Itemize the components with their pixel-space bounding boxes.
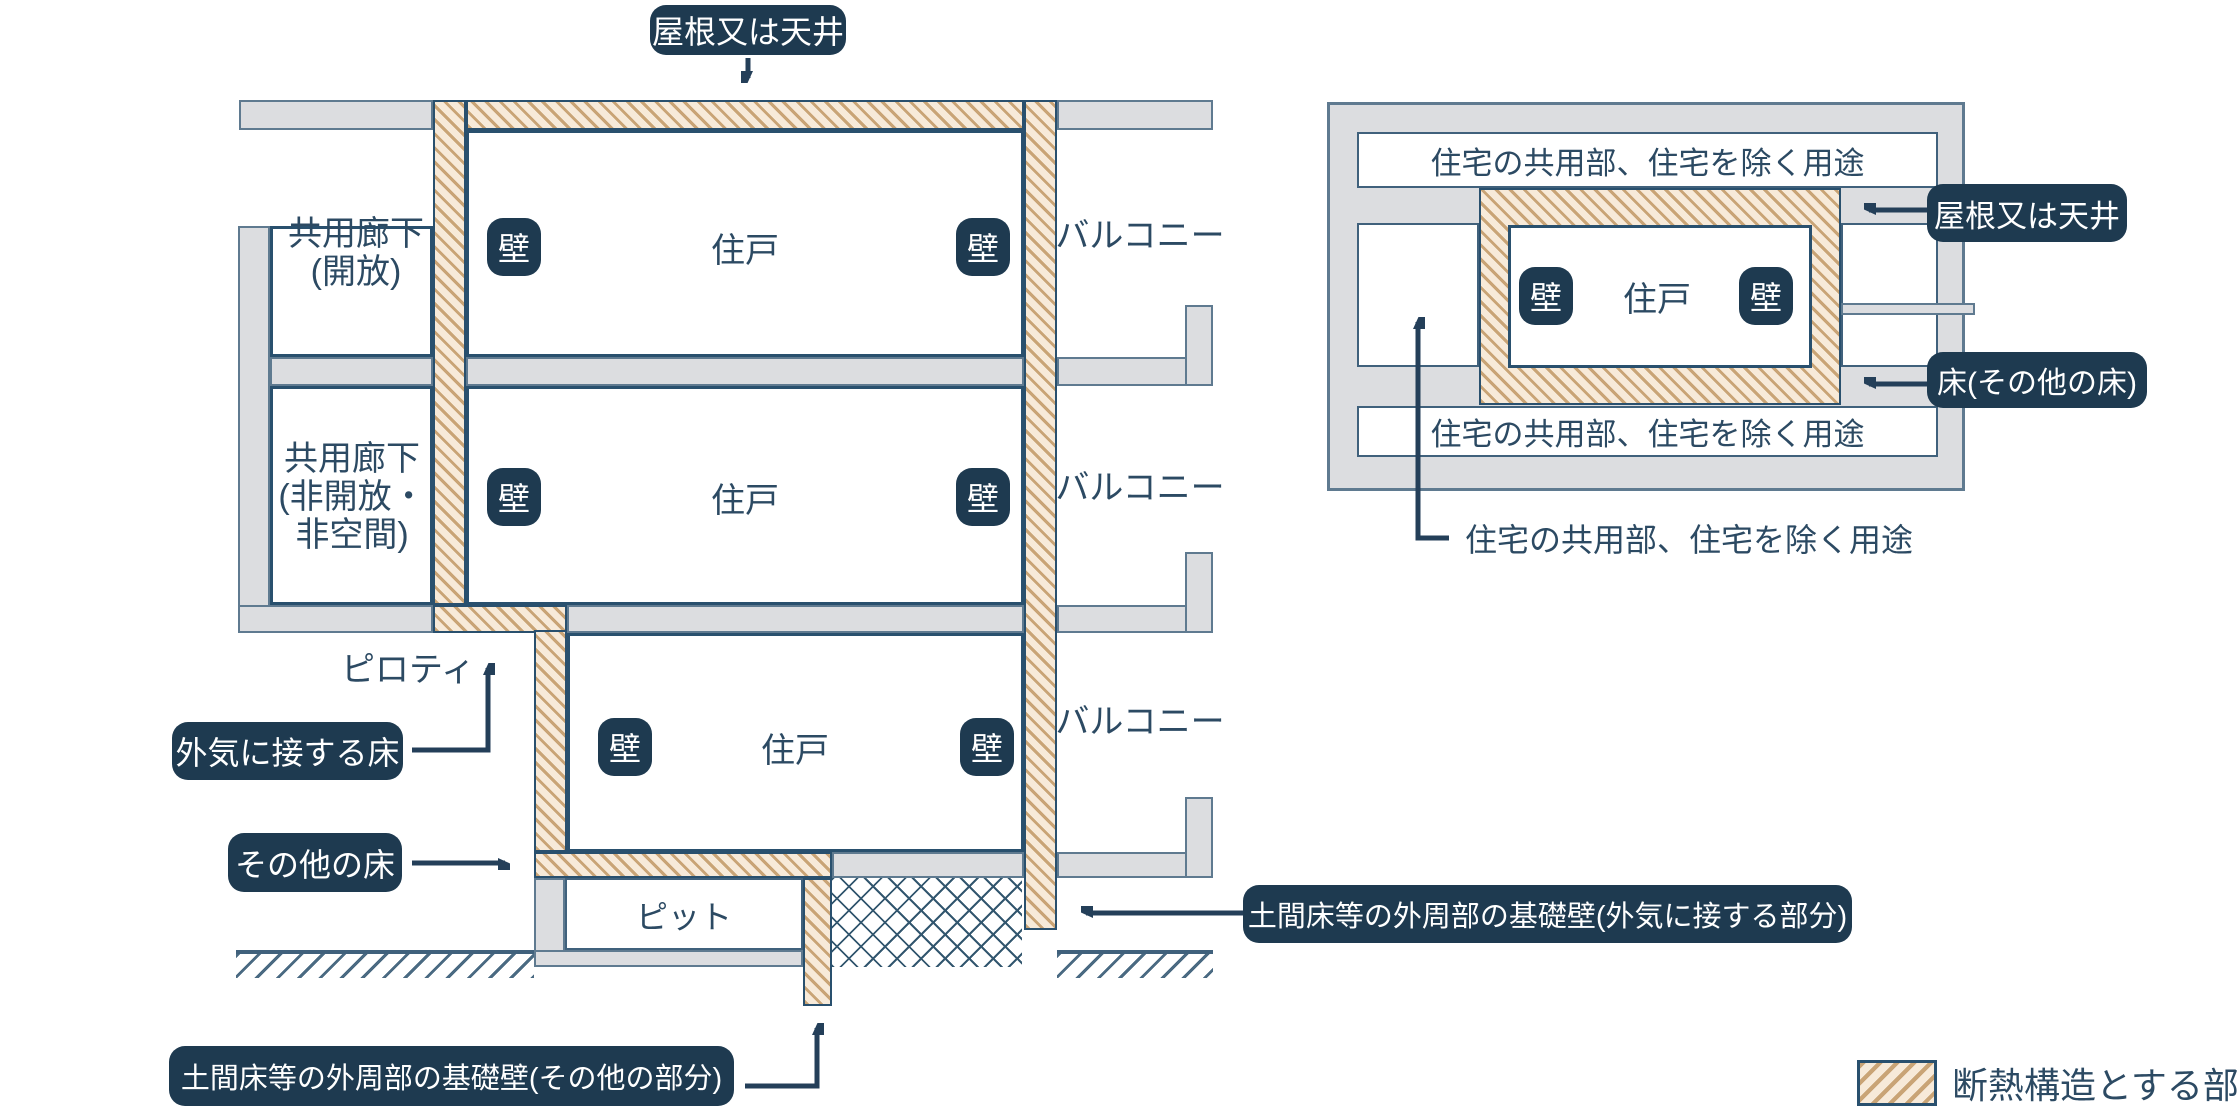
slab-a-middle: [466, 357, 1024, 386]
slab-a-corridor: [270, 357, 433, 386]
legend-insulation-swatch: [1857, 1060, 1937, 1106]
right-bottom-band-label: 住宅の共用部、住宅を除く用途: [1357, 406, 1938, 457]
right-side-room-lower: [1841, 313, 1938, 367]
outside-air-floor-badge: 外気に接する床: [172, 722, 403, 780]
pit-label: ピット: [604, 895, 764, 935]
wall-badge-1l: 壁: [487, 218, 541, 276]
right-common-area-callout-label: 住宅の共用部、住宅を除く用途: [1465, 518, 1913, 558]
slab-b-middle: [567, 605, 1024, 633]
right-top-band-label: 住宅の共用部、住宅を除く用途: [1357, 132, 1938, 188]
balcony-label-1: バルコニー: [1040, 212, 1240, 252]
wall-badge-2l: 壁: [487, 468, 541, 526]
right-wall-badge-r: 壁: [1739, 267, 1793, 325]
right-slab-tab: [1841, 303, 1975, 315]
right-side-room-upper: [1841, 223, 1938, 305]
roof-slab-left: [239, 100, 433, 130]
legend-label: 断熱構造とする部分: [1952, 1059, 2240, 1107]
insulation-diagram: 共用廊下 (開放) 共用廊下 (非開放・ 非空間) ピロティ ピット バルコニー…: [0, 0, 2240, 1108]
other-floor-badge: その他の床: [228, 833, 402, 892]
right-roof-ceiling-badge: 屋根又は天井: [1927, 184, 2127, 242]
balcony-rail-3: [1185, 797, 1213, 878]
balcony-label-2: バルコニー: [1040, 464, 1240, 504]
roof-insulation: [466, 100, 1024, 130]
right-unit-label: 住戸: [1597, 276, 1717, 316]
wall-badge-1r: 壁: [956, 218, 1010, 276]
pilotis-insulated-floor: [433, 605, 567, 633]
slab-b-left: [238, 605, 433, 633]
unit-label-3: 住戸: [735, 727, 855, 767]
right-wall-badge-l: 壁: [1519, 267, 1573, 325]
ground-surface-left: [236, 950, 534, 978]
foundation-other-arrow: [745, 1028, 817, 1086]
wall-badge-2r: 壁: [956, 468, 1010, 526]
corridor-closed-label-line3: 非空間): [242, 509, 462, 553]
roof-ceiling-badge: 屋根又は天井: [650, 5, 846, 55]
wall-badge-3r: 壁: [960, 718, 1014, 776]
balcony-rail-1: [1185, 305, 1213, 386]
unit-label-1: 住戸: [685, 227, 805, 267]
ground-surface-right: [1057, 950, 1213, 978]
pit-insulated-floor: [534, 852, 832, 878]
balcony-rail-2: [1185, 552, 1213, 633]
unit-label-2: 住戸: [685, 477, 805, 517]
balcony-label-3: バルコニー: [1040, 698, 1240, 738]
pilotis-label: ピロティ: [328, 646, 488, 686]
ground-slab-right: [832, 852, 1024, 878]
foundation-other-badge: 土間床等の外周部の基礎壁(その他の部分): [169, 1046, 734, 1106]
pit-bottom-slab: [534, 950, 803, 967]
right-left-room: [1357, 223, 1479, 367]
roof-slab-right: [1057, 100, 1213, 130]
pilotis-insulated-wall: [534, 630, 567, 852]
foundation-wall-other: [803, 878, 832, 1006]
foundation-outside-air-badge: 土間床等の外周部の基礎壁(外気に接する部分): [1243, 885, 1852, 943]
earth-crosshatch: [832, 878, 1022, 967]
right-floor-badge: 床(その他の床): [1927, 352, 2147, 408]
corridor-open-label-line2: (開放): [246, 246, 466, 290]
wall-badge-3l: 壁: [598, 718, 652, 776]
